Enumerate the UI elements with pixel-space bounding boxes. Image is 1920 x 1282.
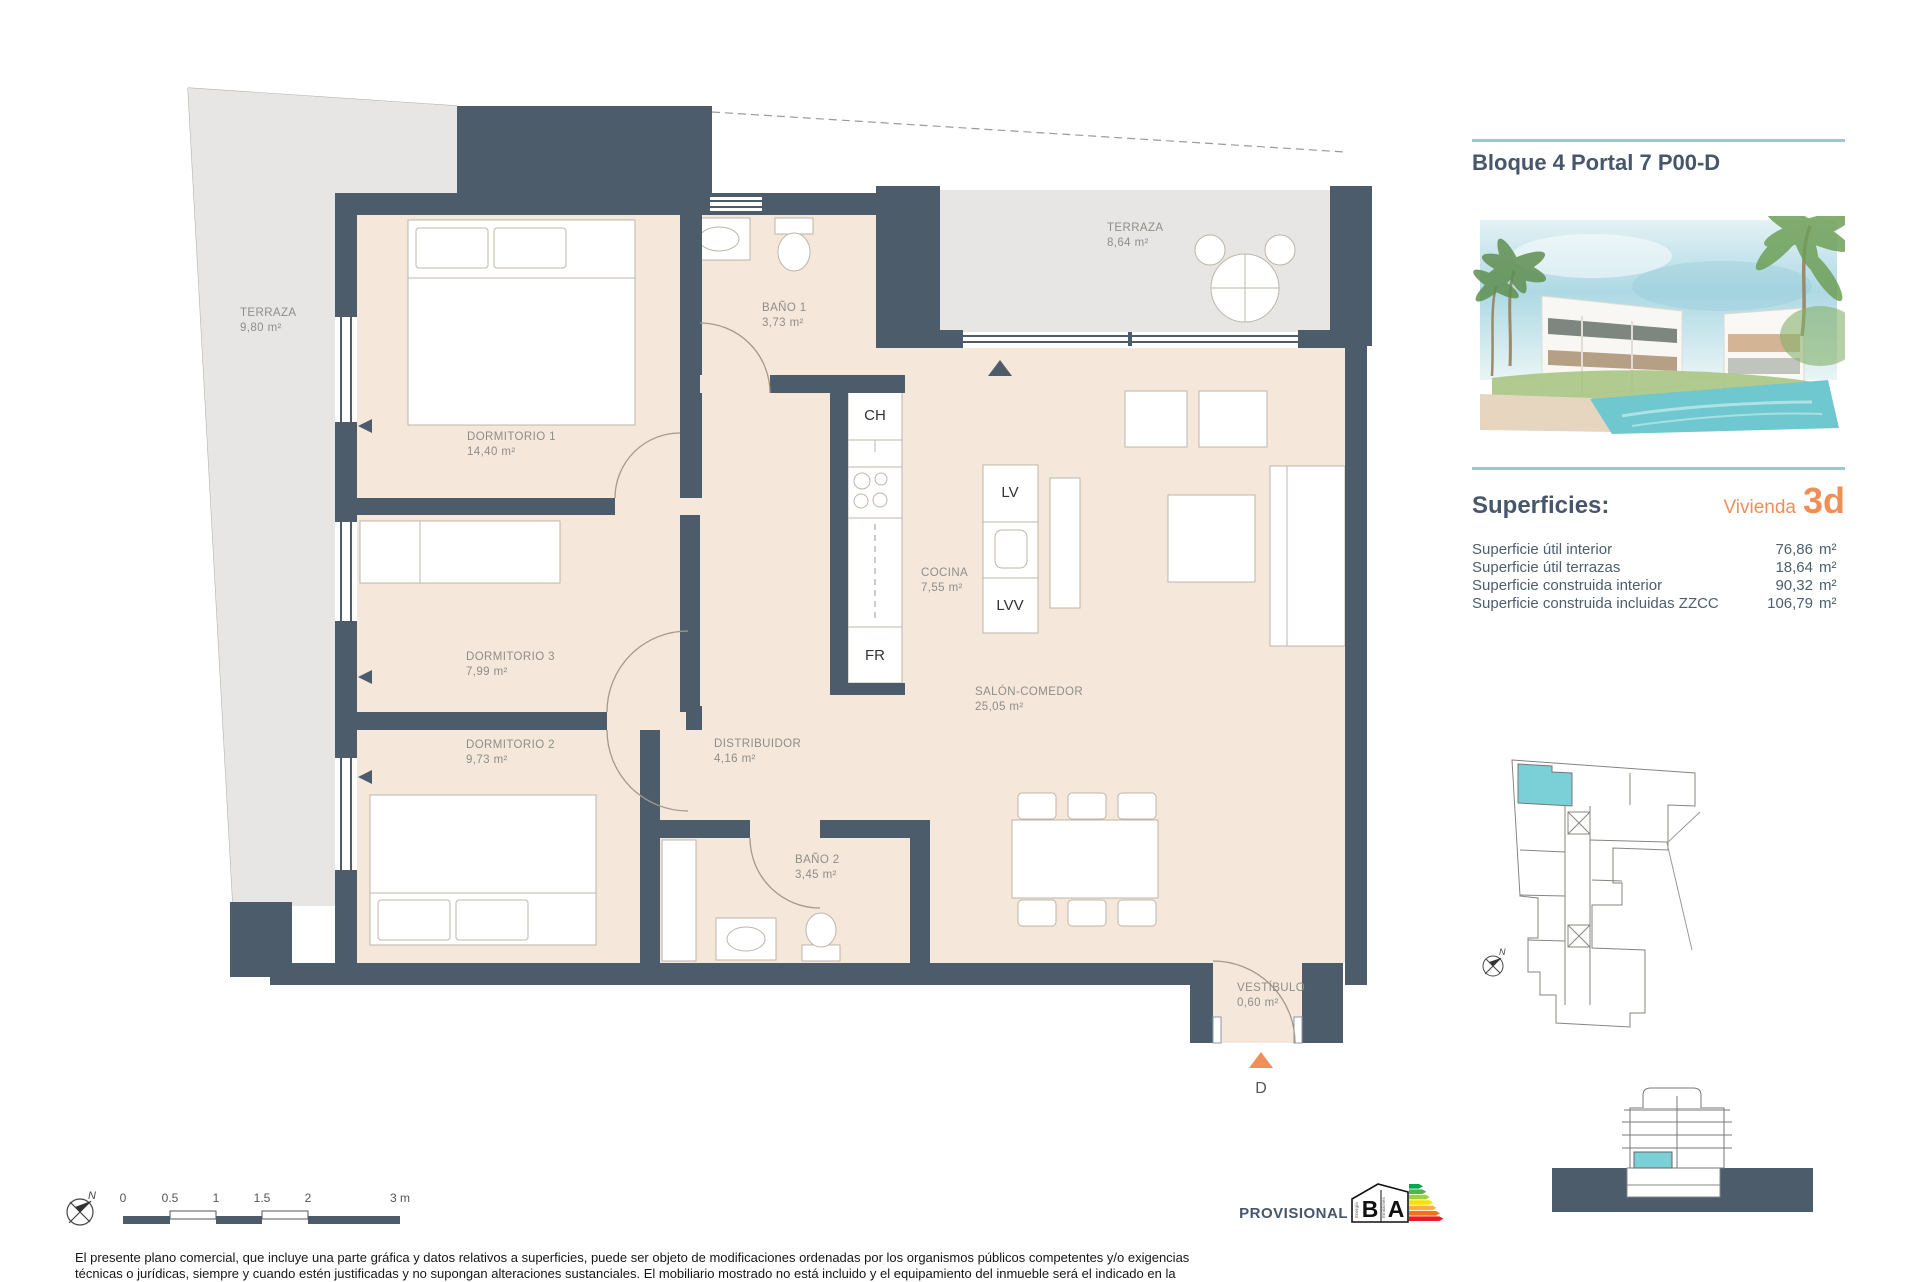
key-plan-highlight-unit [1518,764,1572,806]
energy-caption-right: Emisiones [1381,1196,1386,1218]
window-left-3 [335,758,357,870]
dishwasher-label: LVV [996,597,1023,614]
superficies-row: Superficie útil interior 76,86 m² [1472,541,1845,559]
kitchen-column [848,383,902,683]
svg-text:3 m: 3 m [390,1191,410,1205]
provisional-label: PROVISIONAL [1238,1205,1348,1222]
panel-rule-mid [1472,467,1845,470]
floor-plan-sheet: DORMITORIO 1 14,40 m² BAÑO 1 3,73 m² DOR… [0,0,1920,1280]
bed-dormitorio-1 [408,220,635,425]
compass-key-plan: N [1483,947,1506,976]
energy-rating-logo: B A Energía Emisiones [1352,1184,1443,1222]
svg-text:7,55 m²: 7,55 m² [921,582,963,594]
window-bath1 [710,197,762,211]
svg-text:BAÑO 2: BAÑO 2 [795,853,840,866]
svg-text:7,99 m²: 7,99 m² [466,666,508,678]
svg-text:3,73 m²: 3,73 m² [762,317,804,329]
svg-text:1.5: 1.5 [254,1191,271,1205]
fridge-label: FR [865,647,885,664]
svg-text:DISTRIBUIDOR: DISTRIBUIDOR [714,738,801,750]
svg-text:DORMITORIO 2: DORMITORIO 2 [466,739,555,751]
entrance-letter: D [1255,1080,1267,1097]
plan-graphics: DORMITORIO 1 14,40 m² BAÑO 1 3,73 m² DOR… [0,0,1920,1280]
washer-label: LV [1001,484,1018,501]
vivienda-label: Vivienda [1723,497,1796,519]
window-living [963,332,1298,346]
svg-text:TERRAZA: TERRAZA [1107,222,1163,234]
north-label-main: N [88,1190,96,1202]
svg-text:14,40 m²: 14,40 m² [467,446,516,458]
svg-text:25,05 m²: 25,05 m² [975,701,1024,713]
window-left-1 [335,317,357,422]
svg-text:2: 2 [305,1191,312,1205]
key-plan: N [1483,760,1700,1027]
superficies-row: Superficie construida incluidas ZZCC 106… [1472,595,1845,613]
svg-text:0,60 m²: 0,60 m² [1237,997,1279,1009]
svg-text:8,64 m²: 8,64 m² [1107,237,1149,249]
svg-text:9,73 m²: 9,73 m² [466,754,508,766]
superficies-table: Superficie útil interior 76,86 m² Superf… [1472,541,1845,613]
elevation-highlight-unit [1634,1152,1672,1168]
entrance-arrow [1249,1052,1273,1068]
project-rendering-image [1470,193,1860,436]
page-title: Bloque 4 Portal 7 P00-D [1472,150,1845,176]
svg-text:VESTÍBULO: VESTÍBULO [1237,981,1305,994]
bed-dormitorio-3 [360,521,560,583]
superficies-header: Superficies: Vivienda 3d [1472,480,1845,522]
panel-rule-top [1472,139,1845,142]
svg-text:9,80 m²: 9,80 m² [240,322,282,334]
scale-bar: 0 0.5 1 1.5 2 3 m [120,1191,410,1224]
svg-text:0.5: 0.5 [162,1191,179,1205]
svg-text:TERRAZA: TERRAZA [240,307,296,319]
svg-text:BAÑO 1: BAÑO 1 [762,301,807,314]
building-elevation [1552,1088,1813,1212]
north-label-key-plan: N [1499,947,1506,957]
energy-letter-a: A [1388,1196,1405,1222]
svg-text:3,45 m²: 3,45 m² [795,869,837,881]
svg-text:0: 0 [120,1191,127,1205]
svg-text:4,16 m²: 4,16 m² [714,753,756,765]
superficies-heading: Superficies: [1472,492,1723,520]
closet-label: CH [864,407,886,424]
energy-letter-b: B [1362,1196,1379,1222]
vivienda-value: 3d [1803,480,1845,522]
svg-text:SALÓN-COMEDOR: SALÓN-COMEDOR [975,685,1083,698]
svg-text:DORMITORIO 1: DORMITORIO 1 [467,431,556,443]
superficies-row: Superficie útil terrazas 18,64 m² [1472,559,1845,577]
energy-caption-left: Energía [1354,1202,1359,1218]
energy-arrows [1409,1184,1443,1221]
compass-main: N [67,1190,96,1225]
svg-text:1: 1 [213,1191,220,1205]
svg-text:DORMITORIO 3: DORMITORIO 3 [466,651,555,663]
superficies-row: Superficie construida interior 90,32 m² [1472,577,1845,595]
legal-disclaimer: El presente plano comercial, que incluye… [75,1250,1445,1282]
window-left-2 [335,522,357,621]
svg-text:COCINA: COCINA [921,567,968,579]
disclaimer-line-1: El presente plano comercial, que incluye… [75,1250,1445,1266]
bed-dormitorio-2 [370,795,596,945]
